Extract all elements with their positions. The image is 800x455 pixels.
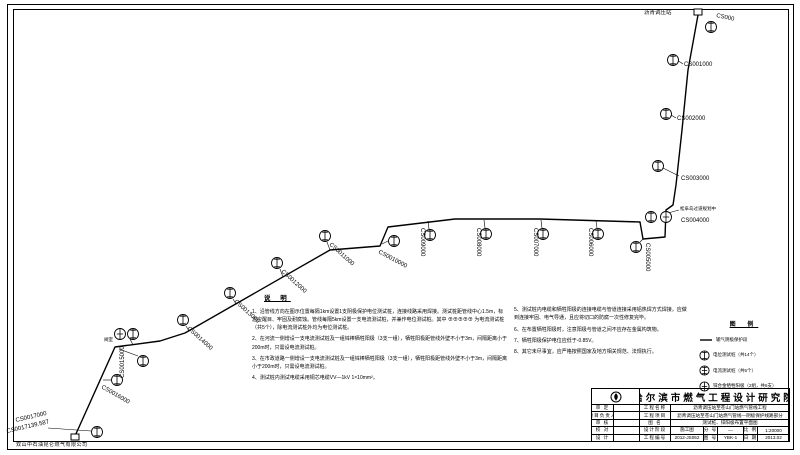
test-pile-marker — [225, 288, 236, 299]
tb-label: 审 定 — [592, 404, 613, 411]
tb-label: 设 计 — [592, 434, 613, 441]
tb-label: 校 对 — [592, 426, 613, 433]
test-pile-marker — [320, 231, 331, 242]
station-box — [694, 9, 702, 15]
legend-row: 电位测试桩（共14个） — [699, 350, 789, 361]
chainage-label: CS009000 — [419, 228, 425, 257]
tb-value: 2012-JS052 — [670, 434, 703, 441]
tb-signature-cell — [613, 434, 639, 441]
chainage-label: CS006000 — [587, 228, 593, 257]
station-label: 沥青调压站 — [644, 8, 672, 16]
note-item: 7、牺牲阳极保护电位应低于-0.85V。 — [514, 337, 688, 345]
tb-field: 图 号 — [703, 434, 717, 441]
tb-value: — — [717, 426, 743, 433]
test-pile-marker — [661, 109, 672, 120]
legend-row: 电流测试桩（共5个） — [699, 365, 789, 376]
company-footer: 双山中石油昆仑燃气有限公司 — [16, 441, 88, 448]
note-item: 2、在河流一侧增设一支电流测试桩及一组锌棒牺牲阳极（3支一组），牺牲阳极距管线外… — [252, 335, 508, 352]
legend-label: 电位测试桩（共14个） — [713, 352, 759, 358]
institute-logo — [592, 389, 639, 404]
test-pile-marker — [178, 315, 189, 326]
pipeline-line-icon — [699, 335, 713, 345]
note-item: 4、测试桩内测试电缆采用铜芯电缆VV—1kV 1×10mm²。 — [252, 374, 508, 382]
pipeline-plan-svg: CS000 CS001000 CS002000 CS003000 松阜岛过道规划… — [0, 0, 800, 455]
notes-heading: 说 明 — [264, 294, 508, 305]
chainage-label: CS0011000 — [328, 242, 356, 268]
tb-field: 日 期 — [743, 434, 757, 441]
tb-field: 比 例 — [743, 426, 757, 433]
test-pile-marker — [389, 236, 400, 247]
chainage-label: CS005000 — [644, 243, 650, 272]
legend-label: 输气阴极保护段 — [716, 337, 748, 343]
test-pile-marker — [272, 258, 283, 269]
tb-signature-cell — [613, 426, 639, 433]
test-pile-marker — [668, 55, 679, 66]
notes-right-column: 5、测试桩内电缆和牺牲阳极的连接电缆与管道连接采用铝热焊方式焊接，应做到连接牢固… — [514, 306, 688, 359]
tb-value: 沥青调压站至苍山门站燃气管线工程 — [670, 404, 789, 411]
chainage-label: CS0014000 — [186, 326, 214, 352]
test-pile-marker — [481, 229, 492, 240]
tb-value: 测试桩、锌阳极布置平面图 — [670, 419, 789, 426]
tb-field: 工程项目 — [639, 411, 670, 418]
tb-signature-cell — [613, 404, 639, 411]
chainage-label: CS004000 — [681, 218, 710, 224]
tb-signature-cell — [613, 419, 639, 426]
legend-row: 输气阴极保护段 — [699, 335, 789, 345]
legend-label: 电流测试桩（共5个） — [713, 368, 756, 374]
anode-marker — [661, 212, 672, 223]
notes-left-column: 说 明 1、沿管线方向在图示位置每隔1km设置1支阴极保护电位测试桩，连接线路采… — [252, 294, 508, 386]
chainage-label: CS0012000 — [280, 269, 308, 295]
title-block: 哈尔滨市燃气工程设计研究院 审 定 工程名称 沥青调压站至苍山门站燃气管线工程 … — [591, 388, 790, 442]
chainage-label: CS0015000 — [120, 346, 126, 378]
chainage-label: CS007000 — [532, 228, 538, 257]
chainage-label: CS008000 — [475, 228, 481, 257]
crossing-label: 松阜岛过道规划中 — [680, 205, 716, 212]
tb-field: 分 号 — [703, 426, 717, 433]
drawing-sheet: CS000 CS001000 CS002000 CS003000 松阜岛过道规划… — [0, 0, 800, 455]
tb-signature-cell — [613, 411, 639, 418]
chainage-label: CS002000 — [677, 116, 706, 122]
test-pile-marker — [646, 212, 657, 223]
note-item: 1、沿管线方向在图示位置每隔1km设置1支阴极保护电位测试桩，连接线路采用焊接。… — [252, 308, 508, 333]
current-test-pile-icon — [699, 365, 710, 376]
chainage-label: CS0016000 — [100, 385, 131, 406]
legend-title: 图 例 — [699, 319, 789, 328]
potential-test-pile-icon — [699, 350, 710, 361]
tb-field: 设计阶段 — [639, 426, 670, 433]
chainage-label: CS0017139.587 — [6, 419, 50, 435]
note-item: 5、测试桩内电缆和牺牲阳极的连接电缆与管道连接采用铝热焊方式焊接，应做到连接牢固… — [514, 306, 688, 323]
tb-label: 审 核 — [592, 419, 613, 426]
test-pile-marker — [593, 229, 604, 240]
tb-value: 沥青调压站至苍山门站燃气管线—阴极保护线路部分 — [670, 411, 789, 418]
note-item: 6、在布置牺牲阳极时，注意阳极与管道之间不应存在金属构筑物。 — [514, 326, 688, 334]
test-pile-marker — [653, 161, 664, 172]
test-pile-marker — [706, 22, 717, 33]
tb-field: 工程名称 — [639, 404, 670, 411]
chainage-label: CS0010000 — [377, 249, 408, 269]
legend: 图 例 输气阴极保护段 电位测试桩（共14个） 电流测试桩（共5个） 锌合金牺牲… — [699, 319, 789, 396]
note-item: 3、在市政道路一侧增设一支电流测试桩及一组锌棒牺牲阳极（3支一组），牺牲阳极距管… — [252, 355, 508, 372]
tb-field: 图 名 — [639, 419, 670, 426]
gas-flame-logo-icon — [610, 391, 622, 403]
route-end-box — [71, 434, 79, 440]
test-pile-marker — [538, 229, 549, 240]
institute-name: 哈尔滨市燃气工程设计研究院 — [639, 389, 789, 404]
chainage-label: CS000 — [716, 13, 736, 23]
chainage-label: CS003000 — [681, 176, 710, 182]
test-pile-marker — [92, 427, 103, 438]
tb-value: 施工图 — [670, 426, 703, 433]
anode-marker — [115, 329, 126, 340]
chainage-label: CS001000 — [684, 62, 713, 68]
note-item: 8、其它未尽事宜，应严格按照国家及地方相关规范、法规执行。 — [514, 348, 688, 356]
valve-room-label: 阀室 — [104, 336, 113, 343]
tb-value: YBK-1 — [717, 434, 743, 441]
anode-marker — [128, 329, 139, 340]
tb-value: 1:20000 — [757, 426, 789, 433]
test-pile-marker — [138, 356, 149, 367]
tb-field: 工程编号 — [639, 434, 670, 441]
tb-value: 2013.02 — [757, 434, 789, 441]
test-pile-marker — [425, 230, 436, 241]
tb-label: 项目负责人 — [592, 411, 613, 418]
test-pile-marker — [631, 242, 642, 253]
